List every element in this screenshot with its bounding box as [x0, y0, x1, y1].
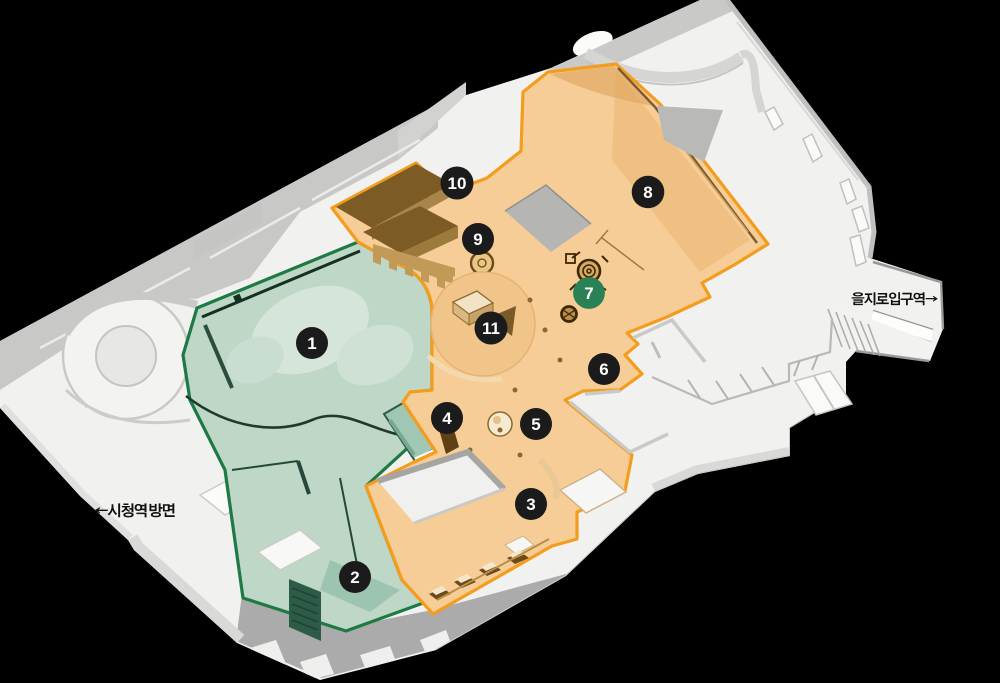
svg-text:7: 7 [584, 284, 593, 303]
svg-text:8: 8 [643, 183, 652, 202]
svg-text:6: 6 [599, 360, 608, 379]
svg-text:3: 3 [526, 495, 535, 514]
svg-text:2: 2 [350, 568, 359, 587]
svg-text:9: 9 [473, 230, 482, 249]
svg-text:5: 5 [531, 415, 540, 434]
svg-text:10: 10 [448, 174, 467, 193]
svg-text:4: 4 [442, 409, 452, 428]
svg-text:1: 1 [307, 334, 316, 353]
svg-text:11: 11 [482, 319, 500, 338]
